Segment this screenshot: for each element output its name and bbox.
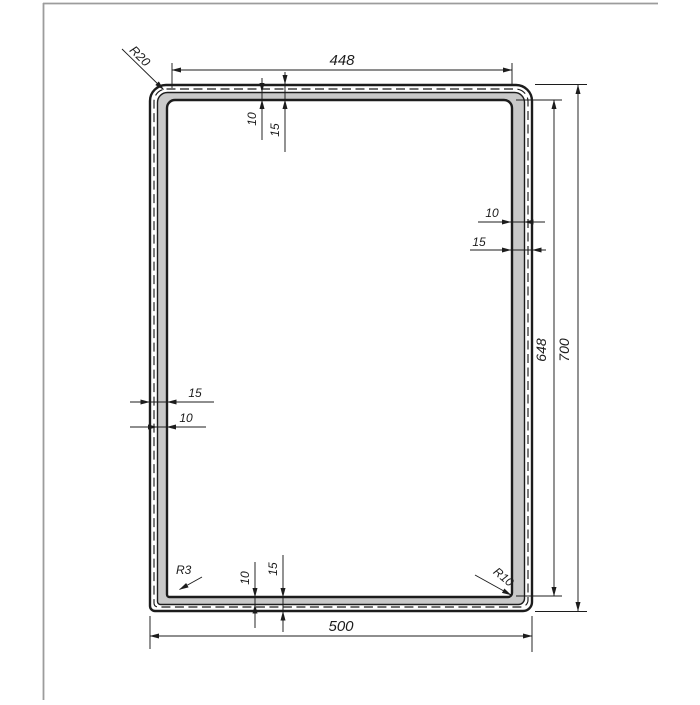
dim-label-wall-total: 15 (188, 386, 202, 400)
dim-bottom-wall-10: 10 (238, 562, 255, 628)
dim-left-wall-15: 15 (130, 386, 214, 402)
frame-mid-contour (158, 93, 525, 605)
dim-label-wall-inner: 10 (238, 571, 252, 585)
dim-label-inner-height: 648 (533, 338, 549, 362)
engineering-drawing-canvas: 448 500 700 648 10 15 10 (0, 0, 700, 700)
radius-bottom-right: R10 (475, 564, 517, 595)
dim-bottom-width: 500 (150, 616, 532, 652)
frame-outer-contour (150, 85, 532, 611)
radius-top-left: R20 (122, 43, 164, 89)
dim-label-wall-inner: 10 (245, 112, 259, 126)
leader-line (180, 577, 203, 590)
dim-label-top-width: 448 (329, 52, 355, 69)
radius-bottom-left: R3 (176, 563, 202, 590)
dim-label-bottom-width: 500 (328, 618, 354, 635)
drawing-sheet: 448 500 700 648 10 15 10 (0, 0, 700, 700)
dim-top-wall-10: 10 (245, 78, 262, 140)
frame-centerline-dashed (154, 89, 528, 607)
frame-inner-contour (167, 100, 512, 597)
frame-profile-fill (158, 93, 525, 605)
radius-label-bottom-left: R3 (176, 563, 192, 577)
dim-top-width: 448 (172, 52, 512, 88)
dim-bottom-wall-15: 15 (266, 555, 283, 632)
radius-label-top-left: R20 (127, 43, 153, 69)
dim-label-wall-inner: 10 (179, 411, 193, 425)
dim-label-wall-inner: 10 (485, 206, 499, 220)
dim-label-wall-total: 15 (266, 562, 280, 576)
dim-label-outer-height: 700 (556, 338, 572, 362)
dim-right-wall-15: 15 (470, 235, 546, 250)
dim-label-wall-total: 15 (268, 123, 282, 137)
dim-label-wall-total: 15 (472, 235, 486, 249)
